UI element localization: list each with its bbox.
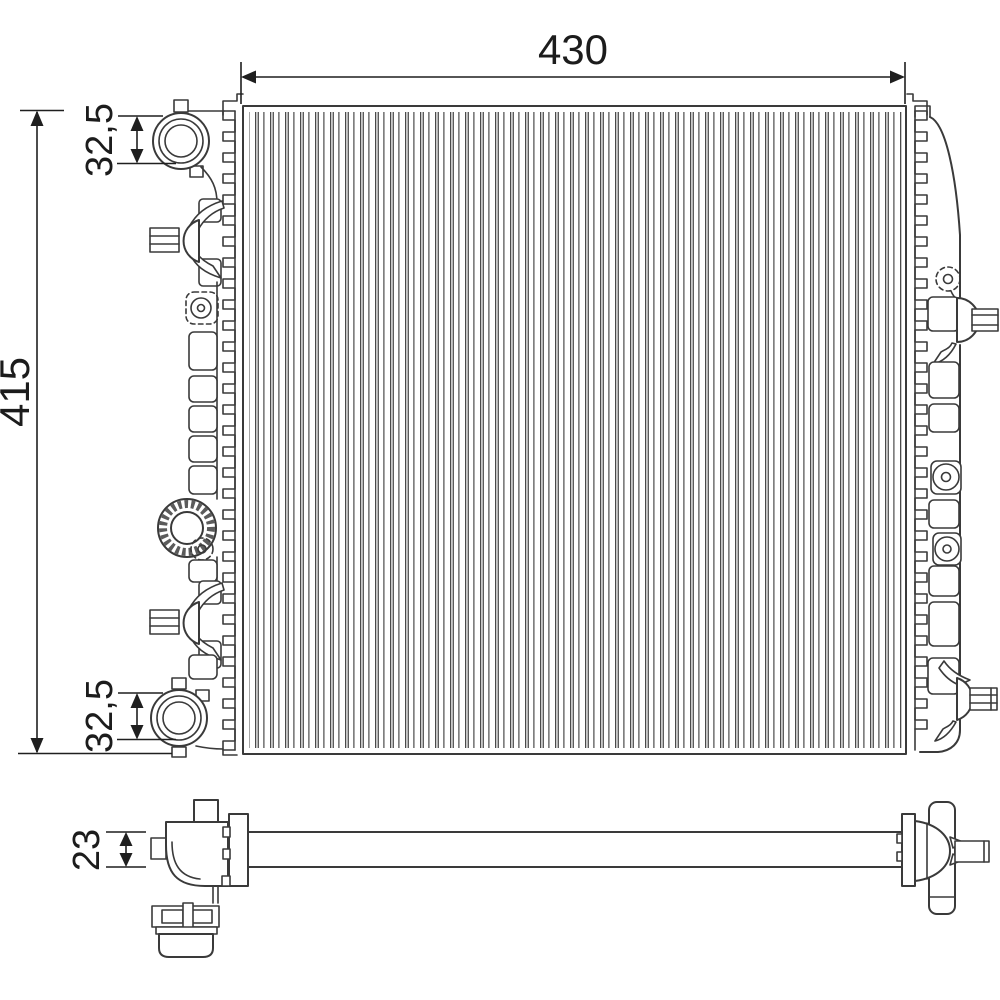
port-tab-bottom [172, 747, 186, 757]
center-cap-boss [158, 499, 216, 560]
bottom-drain-port [151, 678, 209, 757]
arrowhead-top [131, 116, 144, 131]
outlet-stub [955, 841, 989, 862]
arrowhead-top [31, 111, 44, 127]
profile-core-bar [247, 832, 902, 867]
arrowhead-bottom [131, 149, 144, 164]
upper-right-pipe-stub [928, 297, 998, 364]
radiator-technical-drawing: 430 415 32,5 32,5 [0, 0, 1000, 1000]
tank-window [929, 500, 959, 528]
pipe-stub [970, 688, 997, 710]
tank-window [189, 466, 217, 494]
drain-cup [159, 934, 213, 957]
arrowhead-right [890, 71, 905, 84]
flange-notch [223, 849, 230, 859]
drain-plug [152, 903, 219, 957]
flange-notch [223, 827, 230, 837]
dimension-label-bottom-port: 32,5 [79, 679, 121, 753]
radiator-core [223, 94, 927, 754]
bracket-hook-lower [935, 721, 956, 741]
port-tab-top [174, 100, 188, 112]
end-flange-notch [897, 852, 902, 861]
drain-center-tab [183, 903, 193, 929]
end-flange-notch [897, 834, 902, 843]
right-mounting-hole-lower [933, 533, 961, 565]
elbow-stem [213, 886, 218, 903]
arrowhead-left [241, 71, 256, 84]
bracket-hook-lower [933, 343, 956, 364]
radiator-core-fins [249, 112, 902, 748]
lower-right-pipe-stub [928, 658, 997, 741]
pipe-boss [184, 602, 199, 644]
drain-collar [156, 927, 217, 934]
tank-window [189, 560, 217, 582]
left-mounting-hole-upper [186, 292, 218, 324]
port-tab-top [172, 678, 186, 689]
top-right-corner-step [907, 94, 927, 115]
tank-window [929, 566, 959, 596]
right-gasket-zigzag [915, 111, 927, 729]
right-mounting-hole-middle [931, 461, 961, 494]
dimension-core-width: 430 [241, 26, 905, 104]
pipe-stub [150, 228, 179, 252]
upper-left-pipe-stub [150, 199, 224, 286]
extension-lines [18, 111, 172, 754]
pipe-stub [150, 610, 179, 634]
flange-notch [222, 876, 230, 886]
elbow-side-tab [151, 838, 166, 859]
tank-window [189, 655, 217, 679]
elbow-flange [229, 814, 248, 886]
outlet-elbow [151, 800, 248, 903]
arrowhead-top [131, 693, 144, 708]
arrowhead-bottom [31, 738, 44, 754]
dimension-core-height: 415 [0, 111, 172, 754]
left-gasket-zigzag [223, 111, 235, 750]
left-tank [150, 100, 237, 757]
tank-window [189, 376, 217, 402]
technical-drawing-page: 430 415 32,5 32,5 [0, 0, 1000, 1000]
end-flange [902, 814, 915, 886]
arrowhead-top [120, 832, 133, 846]
top-left-corner-step [223, 94, 243, 115]
tank-window [189, 406, 217, 432]
tank-window [929, 404, 959, 432]
end-bracket [897, 802, 989, 914]
tank-window [929, 602, 959, 646]
dimension-label-top-port: 32,5 [79, 103, 121, 177]
pipe-stub [972, 309, 998, 331]
dimension-label-height: 415 [0, 357, 38, 427]
front-view: 430 415 32,5 32,5 [0, 26, 998, 757]
tank-window [928, 297, 959, 331]
tank-window [929, 362, 959, 398]
arrowhead-bottom [120, 853, 133, 867]
elbow-cap [194, 800, 218, 822]
arrowhead-bottom [131, 725, 144, 740]
elbow-body [166, 822, 228, 886]
tank-window [189, 332, 217, 370]
dimension-profile-thickness: 23 [66, 829, 146, 871]
dimension-label-thickness: 23 [66, 829, 108, 871]
pipe-boss [184, 220, 199, 262]
profile-view: 23 [66, 800, 989, 957]
tank-window [189, 436, 217, 462]
dimension-label-width: 430 [538, 26, 608, 73]
